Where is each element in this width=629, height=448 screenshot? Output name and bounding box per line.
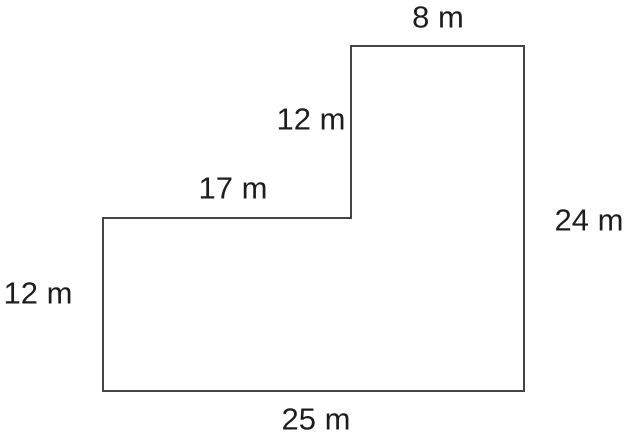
dimension-label-right: 24 m	[555, 205, 624, 236]
geometry-figure: 8 m 12 m 17 m 24 m 12 m 25 m	[0, 0, 629, 448]
dimension-label-left: 12 m	[4, 278, 73, 309]
dimension-label-middle-horizontal: 17 m	[199, 173, 268, 204]
dimension-label-top: 8 m	[412, 2, 464, 33]
l-shape-drawing	[0, 0, 629, 448]
l-shape-outline	[103, 46, 524, 391]
dimension-label-upper-left-vertical: 12 m	[277, 104, 346, 135]
dimension-label-bottom: 25 m	[282, 404, 351, 435]
